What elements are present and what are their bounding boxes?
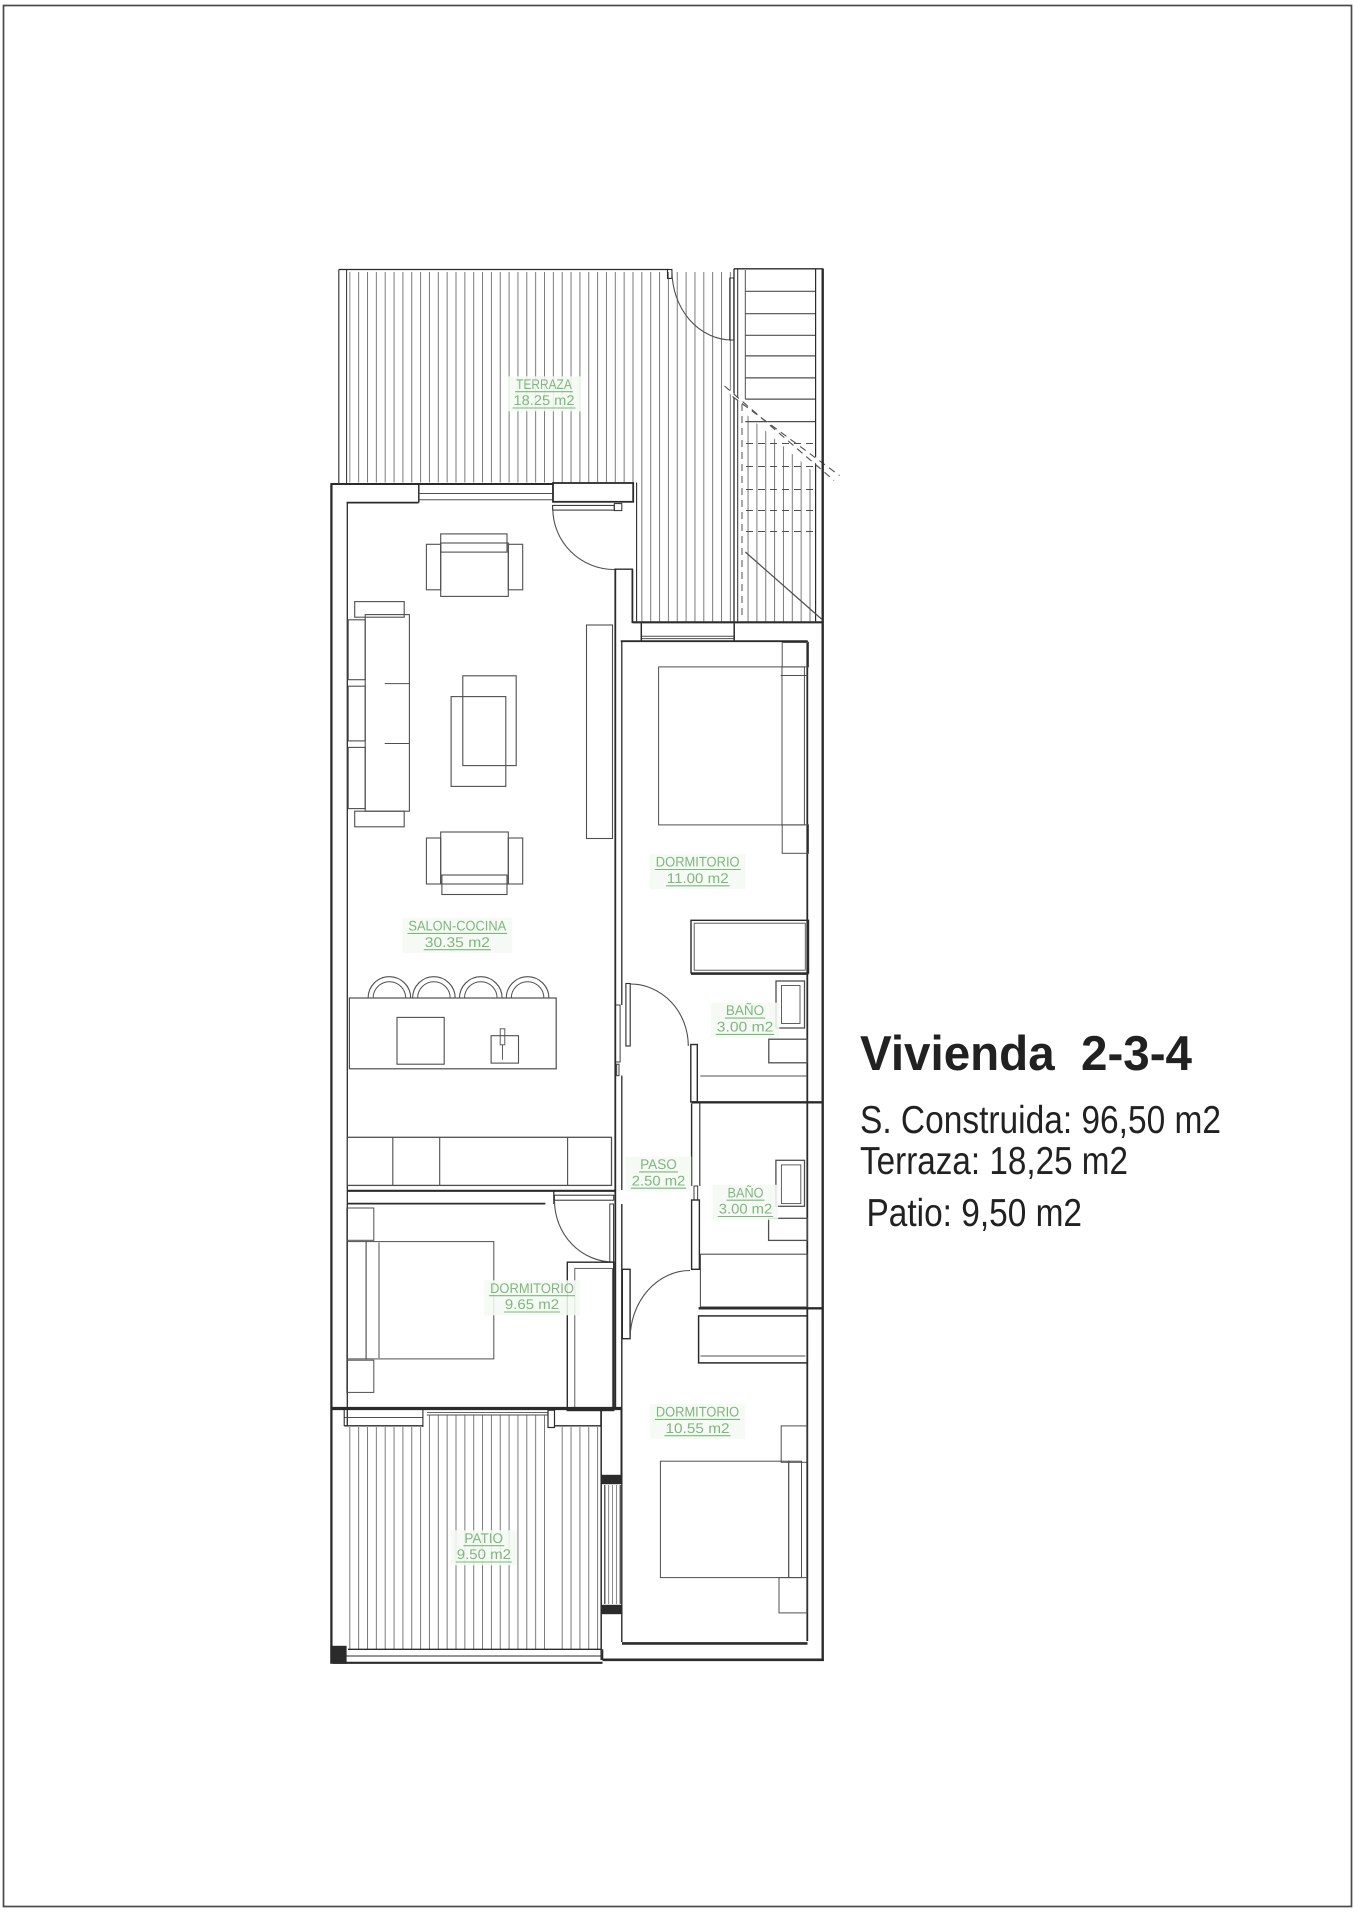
svg-text:9.50 m2: 9.50 m2: [457, 1546, 511, 1562]
svg-text:3.00 m2: 3.00 m2: [717, 1019, 774, 1035]
svg-text:S. Construida: 96,50 m2: S. Construida: 96,50 m2: [860, 1099, 1221, 1142]
svg-text:3.00 m2: 3.00 m2: [719, 1201, 773, 1217]
svg-text:Patio: 9,50 m2: Patio: 9,50 m2: [867, 1192, 1083, 1235]
svg-text:9.65 m2: 9.65 m2: [505, 1296, 559, 1312]
svg-text:Vivienda 2-3-4: Vivienda 2-3-4: [860, 1027, 1192, 1081]
svg-text:DORMITORIO: DORMITORIO: [656, 854, 740, 870]
svg-text:DORMITORIO: DORMITORIO: [656, 1404, 739, 1420]
svg-text:2.50 m2: 2.50 m2: [632, 1172, 686, 1188]
svg-text:11.00 m2: 11.00 m2: [667, 870, 729, 886]
svg-text:BAÑO: BAÑO: [728, 1184, 764, 1200]
svg-text:SALON-COCINA: SALON-COCINA: [408, 918, 506, 934]
svg-text:DORMITORIO: DORMITORIO: [490, 1280, 574, 1296]
svg-text:30.35 m2: 30.35 m2: [425, 934, 490, 950]
svg-text:BAÑO: BAÑO: [726, 1002, 764, 1018]
svg-text:TERRAZA: TERRAZA: [516, 376, 572, 392]
svg-text:10.55 m2: 10.55 m2: [666, 1420, 730, 1436]
svg-text:PASO: PASO: [640, 1156, 677, 1172]
svg-text:Terraza: 18,25 m2: Terraza: 18,25 m2: [860, 1140, 1128, 1183]
svg-text:18.25 m2: 18.25 m2: [514, 392, 575, 408]
svg-text:PATIO: PATIO: [464, 1530, 503, 1546]
